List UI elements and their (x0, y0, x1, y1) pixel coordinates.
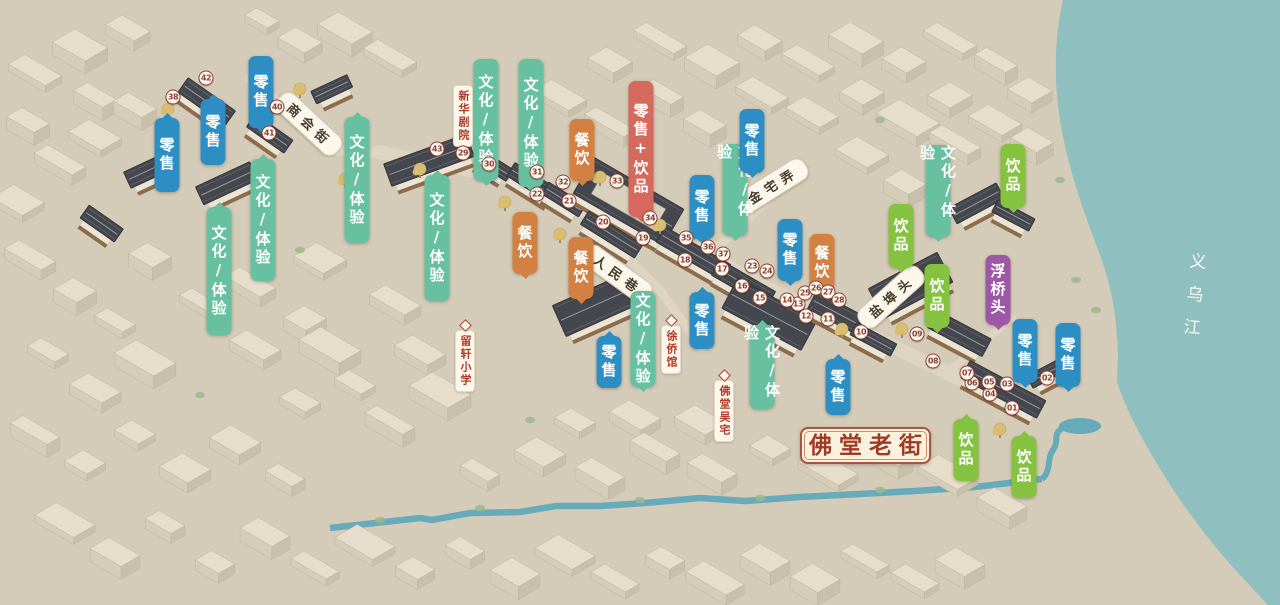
category-pill-culture: 文化/体验 (251, 159, 276, 281)
shop-number-marker-10: 10 (854, 325, 869, 340)
shop-number-marker-40: 40 (270, 100, 285, 115)
category-pill-retail: 零售 (1013, 319, 1038, 383)
category-pill-dining: 餐饮 (569, 237, 594, 299)
shop-number-marker-34: 34 (643, 211, 658, 226)
category-pill-retail: 零售 (1056, 323, 1081, 387)
shop-number-marker-28: 28 (832, 293, 847, 308)
category-pill-culture: 文化/体验 (631, 291, 656, 387)
category-pill-retail: 零售 (690, 292, 715, 349)
category-pill-retail_drinks: 零售+饮品 (629, 81, 654, 217)
shop-number-marker-03: 03 (1000, 377, 1015, 392)
place-name-banner: 佛堂吴宅 (714, 380, 734, 442)
place-name-banner: 留轩小学 (455, 330, 475, 392)
shop-number-marker-24: 24 (760, 264, 775, 279)
shop-number-marker-23: 23 (745, 259, 760, 274)
street-name-banner: 盐埠头 (853, 261, 929, 332)
category-pill-landmark: 浮桥头 (986, 255, 1011, 325)
shop-number-marker-09: 09 (910, 327, 925, 342)
place-name-banner: 新华剧院 (453, 85, 473, 147)
shop-number-marker-20: 20 (596, 215, 611, 230)
shop-number-marker-07: 07 (960, 366, 975, 381)
shop-number-marker-32: 32 (556, 175, 571, 190)
shop-number-marker-30: 30 (482, 157, 497, 172)
category-pill-retail: 零售 (740, 109, 765, 173)
category-pill-culture: 文化/体验 (425, 175, 450, 301)
shop-number-marker-19: 19 (636, 231, 651, 246)
shop-number-marker-41: 41 (262, 126, 277, 141)
shop-number-marker-08: 08 (926, 354, 941, 369)
shop-number-marker-37: 37 (716, 247, 731, 262)
category-pill-culture: 文化/体验 (750, 325, 775, 409)
category-pill-retail: 零售 (690, 175, 715, 239)
category-pill-drinks: 饮品 (889, 204, 914, 268)
category-pill-dining: 餐饮 (513, 212, 538, 274)
shop-number-marker-15: 15 (753, 291, 768, 306)
category-pill-culture: 文化/体验 (207, 207, 232, 335)
category-pill-dining: 餐饮 (570, 119, 595, 181)
place-name-banner: 徐侨馆 (661, 325, 681, 374)
category-pill-culture: 文化/体验 (345, 117, 370, 243)
category-pill-retail: 零售 (778, 219, 803, 281)
shop-number-marker-14: 14 (780, 293, 795, 308)
category-pill-retail: 零售 (826, 359, 851, 415)
shop-number-marker-36: 36 (701, 240, 716, 255)
category-pill-drinks: 饮品 (925, 264, 950, 328)
map-title-plaque: 佛堂老街 (800, 427, 931, 464)
category-pill-retail: 零售 (155, 118, 180, 192)
category-pill-drinks: 饮品 (1012, 436, 1037, 498)
shop-number-marker-16: 16 (735, 279, 750, 294)
shop-number-marker-21: 21 (562, 194, 577, 209)
map-label-overlay: 佛堂老街 义乌江 零售零售零售文化/体验文化/体验文化/体验文化/体验文化/体验… (0, 0, 1280, 605)
shop-number-marker-02: 02 (1040, 371, 1055, 386)
category-pill-retail: 零售 (249, 56, 274, 128)
shop-number-marker-33: 33 (610, 174, 625, 189)
shop-number-marker-29: 29 (456, 146, 471, 161)
shop-number-marker-05: 05 (982, 375, 997, 390)
map-title-text: 佛堂老街 (802, 434, 929, 457)
river-name-label: 义乌江 (1176, 251, 1210, 352)
shop-number-marker-22: 22 (530, 187, 545, 202)
shop-number-marker-38: 38 (166, 90, 181, 105)
shop-number-marker-11: 11 (821, 312, 836, 327)
shop-number-marker-17: 17 (715, 262, 730, 277)
shop-number-marker-31: 31 (530, 165, 545, 180)
fotang-old-street-map: 佛堂老街 义乌江 零售零售零售文化/体验文化/体验文化/体验文化/体验文化/体验… (0, 0, 1280, 605)
shop-number-marker-43: 43 (430, 142, 445, 157)
category-pill-retail: 零售 (201, 99, 226, 165)
shop-number-marker-18: 18 (678, 253, 693, 268)
shop-number-marker-01: 01 (1005, 401, 1020, 416)
category-pill-drinks: 饮品 (1001, 144, 1026, 208)
category-pill-culture: 文化/体验 (926, 145, 951, 237)
street-name-banner: 商会街 (272, 88, 347, 160)
shop-number-marker-35: 35 (679, 231, 694, 246)
shop-number-marker-42: 42 (199, 71, 214, 86)
category-pill-retail: 零售 (597, 336, 622, 388)
category-pill-drinks: 饮品 (954, 419, 979, 481)
